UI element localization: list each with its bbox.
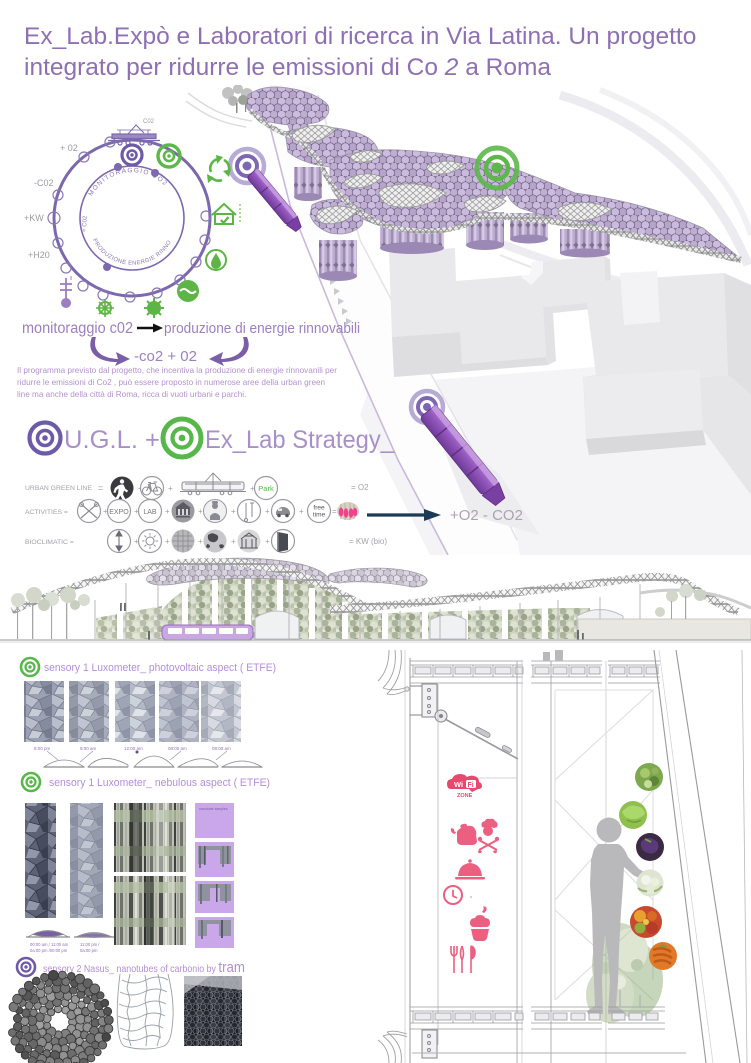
svg-text:Fi: Fi: [468, 782, 474, 789]
svg-text:LAB: LAB: [143, 509, 157, 516]
svg-text:Park: Park: [258, 484, 274, 493]
svg-text:C02: C02: [143, 119, 155, 125]
svg-text:9:00 am: 9:00 am: [80, 746, 97, 751]
svg-text:=: =: [332, 507, 337, 516]
svg-text:+: +: [265, 537, 270, 546]
svg-text:0a:00 pm /00:00 pm: 0a:00 pm /00:00 pm: [30, 948, 68, 953]
svg-text:+: +: [299, 507, 304, 516]
svg-text:+: +: [231, 507, 236, 516]
svg-text:Ex_Lab Strategy_: Ex_Lab Strategy_: [205, 426, 395, 454]
svg-text:sensory 1 Luxometer_ nebulous: sensory 1 Luxometer_ nebulous aspect ( E…: [49, 777, 270, 789]
svg-text:= O2: = O2: [351, 483, 369, 492]
svg-text:U.G.L. +: U.G.L. +: [64, 426, 160, 454]
svg-text:monitoraggio c02: monitoraggio c02: [22, 320, 133, 337]
svg-text:time: time: [313, 512, 326, 519]
svg-text:+: +: [265, 507, 270, 516]
svg-text:8:00 pm: 8:00 pm: [34, 746, 51, 751]
svg-text:00:00 am / 11:00 am: 00:00 am / 11:00 am: [30, 942, 69, 947]
svg-text:0a:00 pm: 0a:00 pm: [80, 948, 98, 953]
svg-text:=: =: [98, 483, 103, 493]
svg-text:+: +: [198, 537, 203, 546]
svg-text:11:00 pm /: 11:00 pm /: [80, 942, 100, 947]
svg-text:+H20: +H20: [28, 250, 50, 260]
svg-text:+O2 - CO2: +O2 - CO2: [450, 507, 523, 524]
svg-text:+KW: +KW: [24, 213, 44, 223]
svg-text:line ma anche della città di R: line ma anche della città di Roma, ricca…: [17, 390, 246, 399]
svg-text:sensory 1 Luxometer_ photovolt: sensory 1 Luxometer_ photovoltaic aspect…: [44, 662, 276, 674]
svg-text:free: free: [313, 505, 325, 512]
svg-text:+: +: [168, 484, 173, 493]
svg-text:+: +: [165, 507, 170, 516]
svg-text:URBAN GREEN LINE: URBAN GREEN LINE: [25, 485, 92, 492]
svg-text:= KW (bio): = KW (bio): [349, 537, 387, 546]
svg-text:08:00 am: 08:00 am: [168, 746, 187, 751]
svg-text:ACTIVITIES =: ACTIVITIES =: [25, 509, 68, 516]
svg-text:12:00 am: 12:00 am: [124, 746, 143, 751]
svg-text:+: +: [198, 507, 203, 516]
svg-text:= C02: = C02: [82, 215, 89, 232]
svg-text:EXPO: EXPO: [109, 509, 129, 516]
svg-text:-co2 + 02: -co2 + 02: [134, 348, 197, 365]
svg-text:ridurre le emissioni di Co2 ,: ridurre le emissioni di Co2 , può essere…: [17, 378, 326, 387]
svg-text:+: +: [231, 537, 236, 546]
svg-text:BIOCLIMATIC =: BIOCLIMATIC =: [25, 539, 74, 546]
svg-text:08:00 am: 08:00 am: [212, 746, 231, 751]
svg-text:ZONE: ZONE: [457, 793, 473, 799]
svg-text:+: +: [165, 537, 170, 546]
svg-text:nanotube samples: nanotube samples: [199, 807, 228, 811]
svg-text:Il programma previsto dal prog: Il programma previsto dal progetto, che …: [17, 366, 337, 375]
svg-text:produzione di energie rinnovab: produzione di energie rinnovabili: [164, 320, 360, 337]
svg-text:-C02: -C02: [34, 178, 54, 188]
svg-text:+ 02: + 02: [60, 143, 78, 153]
svg-text:Wi: Wi: [454, 780, 463, 789]
